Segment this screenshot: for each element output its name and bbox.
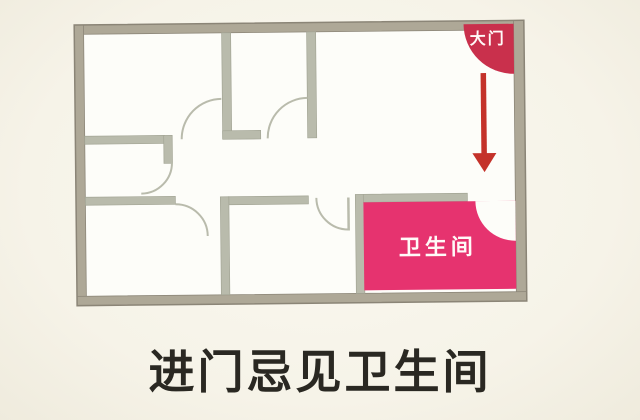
wall-bedroom1-right — [222, 33, 232, 139]
wall-hall-vertical — [220, 197, 230, 295]
caption-text: 进门忌见卫生间 — [0, 336, 640, 402]
feng-shui-floorplan-figure: 卫生间 大门 进门忌见卫生间 — [0, 0, 640, 420]
wall-bathroom-left — [355, 194, 365, 293]
arrow-shaft — [481, 73, 487, 155]
wall-bathroom-top — [363, 193, 467, 202]
wall-left-upper-stub — [164, 135, 173, 163]
bathroom-label: 卫生间 — [399, 235, 477, 261]
wall-hall-horizontal — [228, 196, 308, 205]
wall-left-upper — [85, 135, 165, 144]
entry-door-label: 大门 — [470, 29, 506, 48]
wall-bedroom1-foot — [223, 130, 261, 139]
wall-bedroom2-right — [307, 32, 317, 138]
wall-left-lower — [85, 196, 175, 205]
